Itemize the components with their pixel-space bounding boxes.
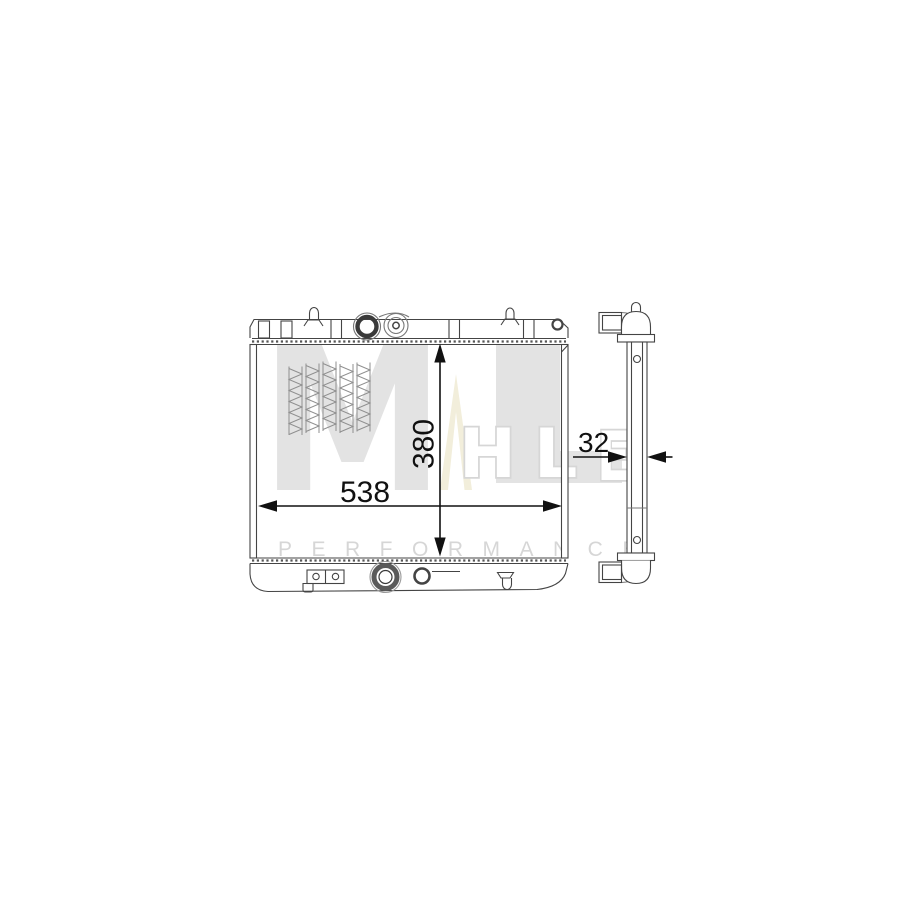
radiator-technical-drawing: M H L E PERFORMANCE [0, 0, 900, 900]
side-column [627, 342, 647, 553]
top-tank [250, 308, 568, 345]
bleed-hole [553, 320, 563, 330]
side-top-inlet-pipe [599, 303, 655, 343]
fin-pattern [289, 362, 370, 436]
arrowhead-up [434, 344, 445, 363]
top-tab-left-1 [259, 321, 270, 338]
drain-plug [370, 562, 401, 593]
dimension-depth: 32 [573, 427, 673, 463]
top-tab-left-2 [281, 321, 292, 338]
arrowhead-right [543, 500, 562, 511]
mounting-pin-top-left [304, 308, 323, 327]
side-bottom-outlet-pipe [599, 553, 655, 584]
dimension-height: 380 [408, 344, 446, 557]
mounting-bracket [303, 570, 344, 592]
side-top-stud [632, 303, 641, 312]
arrowhead-left-inward [647, 451, 666, 462]
arrowhead-left [258, 500, 277, 511]
outlet-fitting [415, 569, 430, 584]
cap-fitting [379, 313, 409, 338]
drawing-layer: 380 538 32 [0, 0, 900, 900]
bottom-tank [250, 558, 568, 593]
mounting-pin-top-right [501, 308, 519, 325]
side-bottom-flange [618, 553, 655, 561]
dimension-annotations: 380 538 32 [258, 344, 673, 557]
arrowhead-down [434, 538, 445, 557]
dimension-depth-label: 32 [578, 427, 609, 458]
filler-neck [354, 313, 381, 340]
dimension-width: 538 [258, 476, 562, 512]
dimension-width-label: 538 [340, 476, 390, 509]
side-top-flange [618, 335, 655, 343]
arrowhead-right-inward [608, 451, 627, 462]
mounting-pin-bottom [498, 573, 514, 590]
dimension-height-label: 380 [408, 419, 441, 469]
